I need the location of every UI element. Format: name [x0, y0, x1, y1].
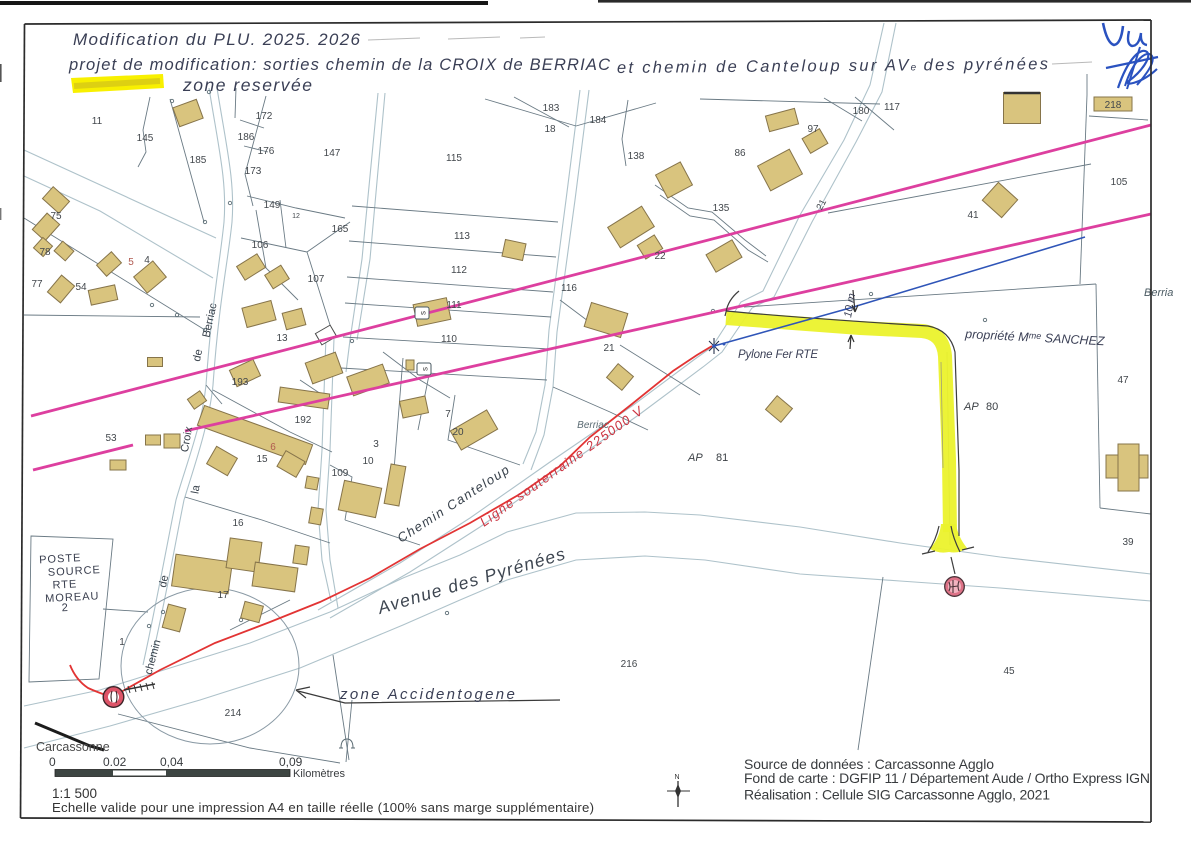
svg-text:Berria: Berria	[1144, 287, 1173, 299]
svg-text:117: 117	[884, 102, 900, 113]
svg-text:17: 17	[217, 590, 229, 601]
svg-text:0,04: 0,04	[160, 755, 184, 769]
svg-text:20: 20	[452, 427, 464, 438]
svg-text:4: 4	[144, 255, 150, 266]
svg-text:115: 115	[446, 153, 462, 164]
svg-text:6: 6	[270, 442, 276, 453]
svg-text:Carcassonne: Carcassonne	[36, 740, 110, 754]
svg-text:Chemin Canteloup: Chemin Canteloup	[394, 462, 511, 545]
svg-text:135: 135	[713, 203, 730, 214]
svg-text:192: 192	[295, 415, 312, 426]
svg-text:172: 172	[256, 111, 273, 122]
svg-text:149: 149	[264, 200, 281, 211]
svg-text:54: 54	[75, 282, 87, 293]
svg-text:86: 86	[734, 148, 746, 159]
svg-text:107: 107	[308, 274, 325, 285]
svg-text:111: 111	[446, 300, 462, 311]
svg-text:165: 165	[332, 224, 349, 235]
svg-text:180: 180	[853, 106, 870, 117]
svg-text:1:1 500: 1:1 500	[52, 786, 97, 801]
svg-text:0: 0	[49, 755, 56, 769]
svg-text:Croix: Croix	[179, 425, 195, 453]
svg-text:15: 15	[256, 454, 268, 465]
svg-text:13: 13	[276, 333, 288, 344]
svg-text:s: s	[419, 311, 428, 315]
svg-text:173: 173	[245, 166, 262, 177]
svg-text:Pylone Fer RTE: Pylone Fer RTE	[738, 349, 818, 361]
svg-text:propriété Mme SANCHEZ: propriété Mme SANCHEZ	[964, 327, 1106, 348]
svg-text:et chemin de Canteloup sur A: et chemin de Canteloup sur AVe des pyrén…	[617, 55, 1048, 77]
svg-text:zone reservée: zone reservée	[182, 75, 312, 95]
svg-text:0,09: 0,09	[279, 755, 303, 769]
svg-text:80: 80	[986, 401, 998, 413]
svg-text:176: 176	[258, 146, 275, 157]
svg-text:109: 109	[332, 468, 349, 479]
svg-text:Kilomètres: Kilomètres	[293, 768, 345, 780]
svg-text:145: 145	[137, 133, 154, 144]
svg-text:47: 47	[1117, 375, 1129, 386]
svg-text:147: 147	[324, 148, 341, 159]
svg-text:Echelle valide pour une impres: Echelle valide pour une impression A4 en…	[52, 800, 594, 815]
svg-text:106: 106	[252, 240, 269, 251]
svg-text:11: 11	[92, 116, 103, 127]
svg-text:138: 138	[628, 151, 645, 162]
svg-text:116: 116	[561, 283, 577, 294]
svg-text:105: 105	[1111, 177, 1128, 188]
svg-text:7: 7	[445, 409, 451, 420]
svg-text:zone Accidentogene: zone Accidentogene	[339, 686, 516, 703]
svg-text:POSTE: POSTE	[39, 552, 82, 566]
svg-text:projet de modification: sortie: projet de modification: sorties chemin d…	[68, 56, 610, 74]
svg-text:45: 45	[1003, 666, 1015, 677]
svg-text:113: 113	[454, 231, 470, 242]
svg-text:110: 110	[441, 334, 457, 345]
svg-text:AP: AP	[963, 401, 979, 413]
svg-text:77: 77	[31, 279, 43, 290]
svg-text:de: de	[191, 348, 205, 362]
svg-text:21: 21	[603, 343, 615, 354]
svg-text:12: 12	[292, 213, 300, 220]
svg-text:0.02: 0.02	[103, 755, 127, 769]
svg-text:41: 41	[967, 210, 979, 221]
svg-text:Berriac: Berriac	[201, 302, 220, 339]
svg-text:s: s	[421, 367, 430, 371]
svg-text:10: 10	[362, 456, 374, 467]
svg-text:18: 18	[544, 124, 556, 135]
svg-text:5: 5	[128, 257, 134, 268]
svg-text:183: 183	[543, 103, 560, 114]
svg-text:Avenue des Pyrénées: Avenue des Pyrénées	[374, 543, 567, 618]
svg-text:de: de	[157, 574, 171, 588]
svg-text:MOREAU: MOREAU	[45, 590, 100, 605]
svg-text:193: 193	[232, 377, 249, 388]
svg-text:SOURCE: SOURCE	[48, 564, 102, 579]
svg-text:22: 22	[654, 251, 666, 262]
svg-text:RTE: RTE	[52, 578, 77, 591]
svg-text:81: 81	[716, 452, 728, 464]
svg-text:214: 214	[225, 708, 242, 719]
svg-text:16: 16	[232, 518, 244, 529]
svg-text:2: 2	[61, 602, 69, 614]
svg-text:Fond de carte : DGFIP 11 / Dép: Fond de carte : DGFIP 11 / Département A…	[744, 770, 1150, 786]
svg-text:39: 39	[1122, 537, 1134, 548]
svg-text:53: 53	[105, 433, 117, 444]
svg-text:1: 1	[119, 637, 125, 648]
svg-text:N: N	[674, 774, 679, 781]
svg-text:186: 186	[238, 132, 255, 143]
svg-text:78: 78	[39, 247, 51, 258]
svg-text:185: 185	[190, 155, 207, 166]
svg-text:218: 218	[1105, 100, 1122, 111]
svg-text:184: 184	[590, 115, 607, 126]
svg-text:10 m: 10 m	[842, 292, 858, 318]
svg-text:216: 216	[621, 659, 638, 670]
svg-text:97: 97	[807, 124, 819, 135]
svg-text:Réalisation : Cellule SIG Carc: Réalisation : Cellule SIG Carcassonne Ag…	[744, 787, 1050, 803]
svg-text:Modification du PLU. 2025. 2: Modification du PLU. 2025. 2026	[73, 30, 361, 49]
svg-text:la: la	[189, 483, 202, 494]
svg-text:AP: AP	[687, 452, 703, 464]
svg-text:3: 3	[373, 439, 379, 450]
svg-text:75: 75	[50, 211, 62, 222]
svg-text:112: 112	[451, 265, 467, 276]
